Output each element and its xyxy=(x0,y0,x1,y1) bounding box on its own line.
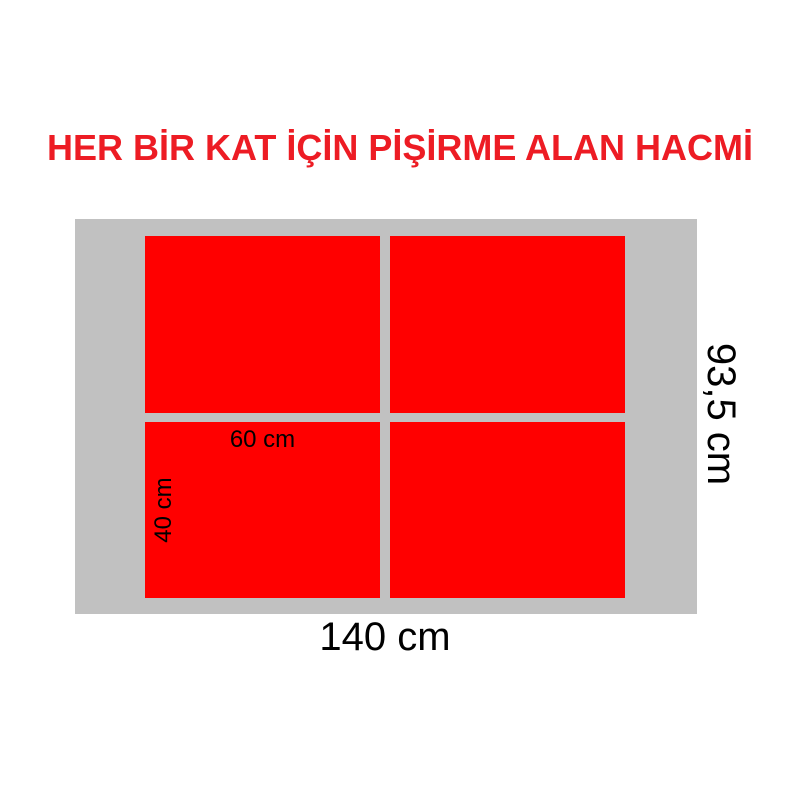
cooking-area-top-left xyxy=(145,236,380,413)
oven-deck-surface: 60 cm 40 cm xyxy=(75,219,697,614)
deck-width-label: 140 cm xyxy=(305,614,465,660)
page: HER BİR KAT İÇİN PİŞİRME ALAN HACMİ 60 c… xyxy=(0,0,800,800)
diagram-title: HER BİR KAT İÇİN PİŞİRME ALAN HACMİ xyxy=(0,120,800,176)
cooking-area-top-right xyxy=(390,236,625,413)
cooking-area-bottom-left: 60 cm 40 cm xyxy=(145,422,380,598)
tray-width-label: 60 cm xyxy=(145,425,380,455)
deck-height-label: 93,5 cm xyxy=(698,334,744,494)
cooking-area-bottom-right xyxy=(390,422,625,598)
tray-height-label: 40 cm xyxy=(151,475,177,545)
